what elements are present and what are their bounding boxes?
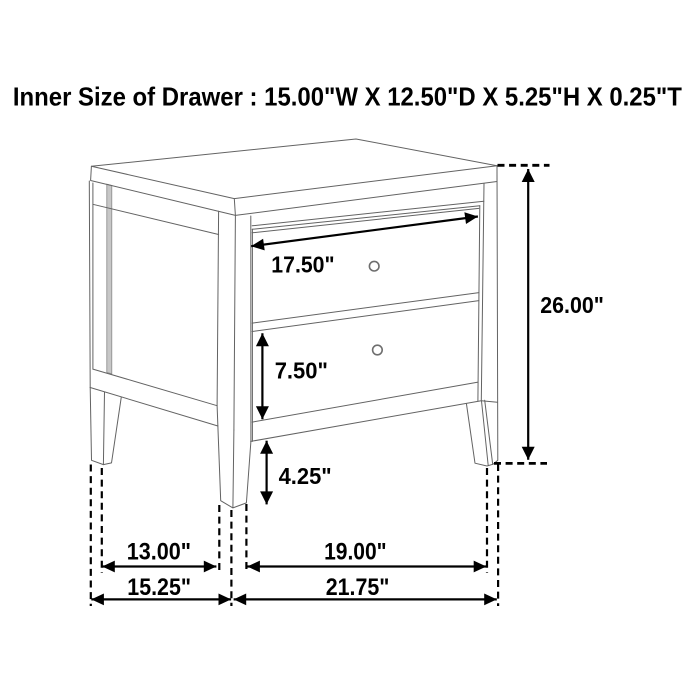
svg-text:26.00": 26.00" xyxy=(540,292,604,318)
svg-text:21.75": 21.75" xyxy=(326,574,390,601)
svg-text:4.25": 4.25" xyxy=(279,463,332,489)
svg-text:19.00": 19.00" xyxy=(324,538,387,565)
svg-text:15.25": 15.25" xyxy=(127,574,191,601)
svg-text:Inner Size of Drawer : 15.00"W: Inner Size of Drawer : 15.00"W X 12.50"D… xyxy=(13,82,682,112)
svg-text:7.50": 7.50" xyxy=(275,358,328,384)
svg-text:17.50": 17.50" xyxy=(271,252,334,278)
svg-text:13.00": 13.00" xyxy=(127,539,191,566)
